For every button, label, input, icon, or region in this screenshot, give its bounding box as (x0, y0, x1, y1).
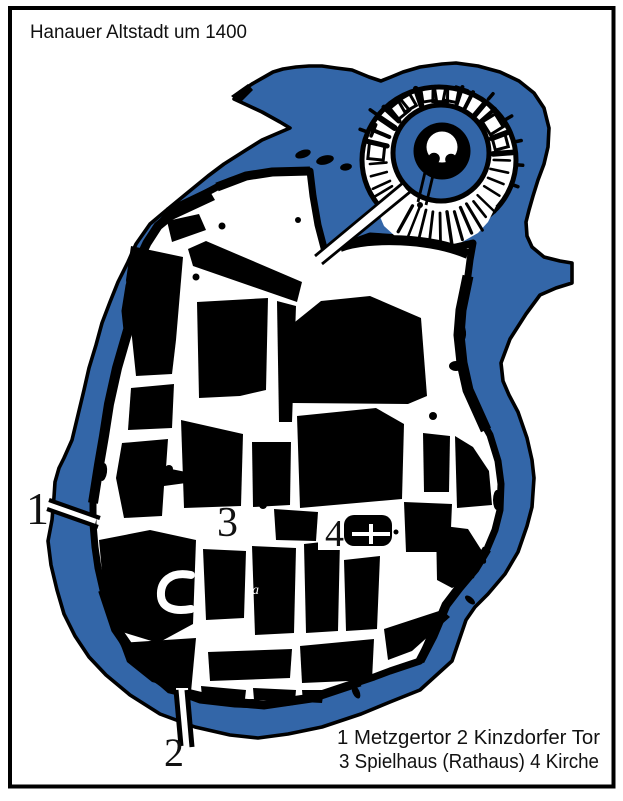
svg-text:1 Metzgertor 2 Kinzdorfer Tor: 1 Metzgertor 2 Kinzdorfer Tor (337, 726, 600, 749)
svg-text:3: 3 (217, 500, 238, 546)
svg-text:4: 4 (325, 513, 344, 555)
svg-text:2: 2 (164, 730, 184, 775)
svg-text:a: a (252, 583, 259, 598)
svg-text:Hanauer Altstadt um 1400: Hanauer Altstadt um 1400 (30, 22, 247, 43)
svg-text:3 Spielhaus (Rathaus) 4 Kirche: 3 Spielhaus (Rathaus) 4 Kirche (339, 750, 599, 773)
svg-text:1: 1 (26, 483, 49, 534)
